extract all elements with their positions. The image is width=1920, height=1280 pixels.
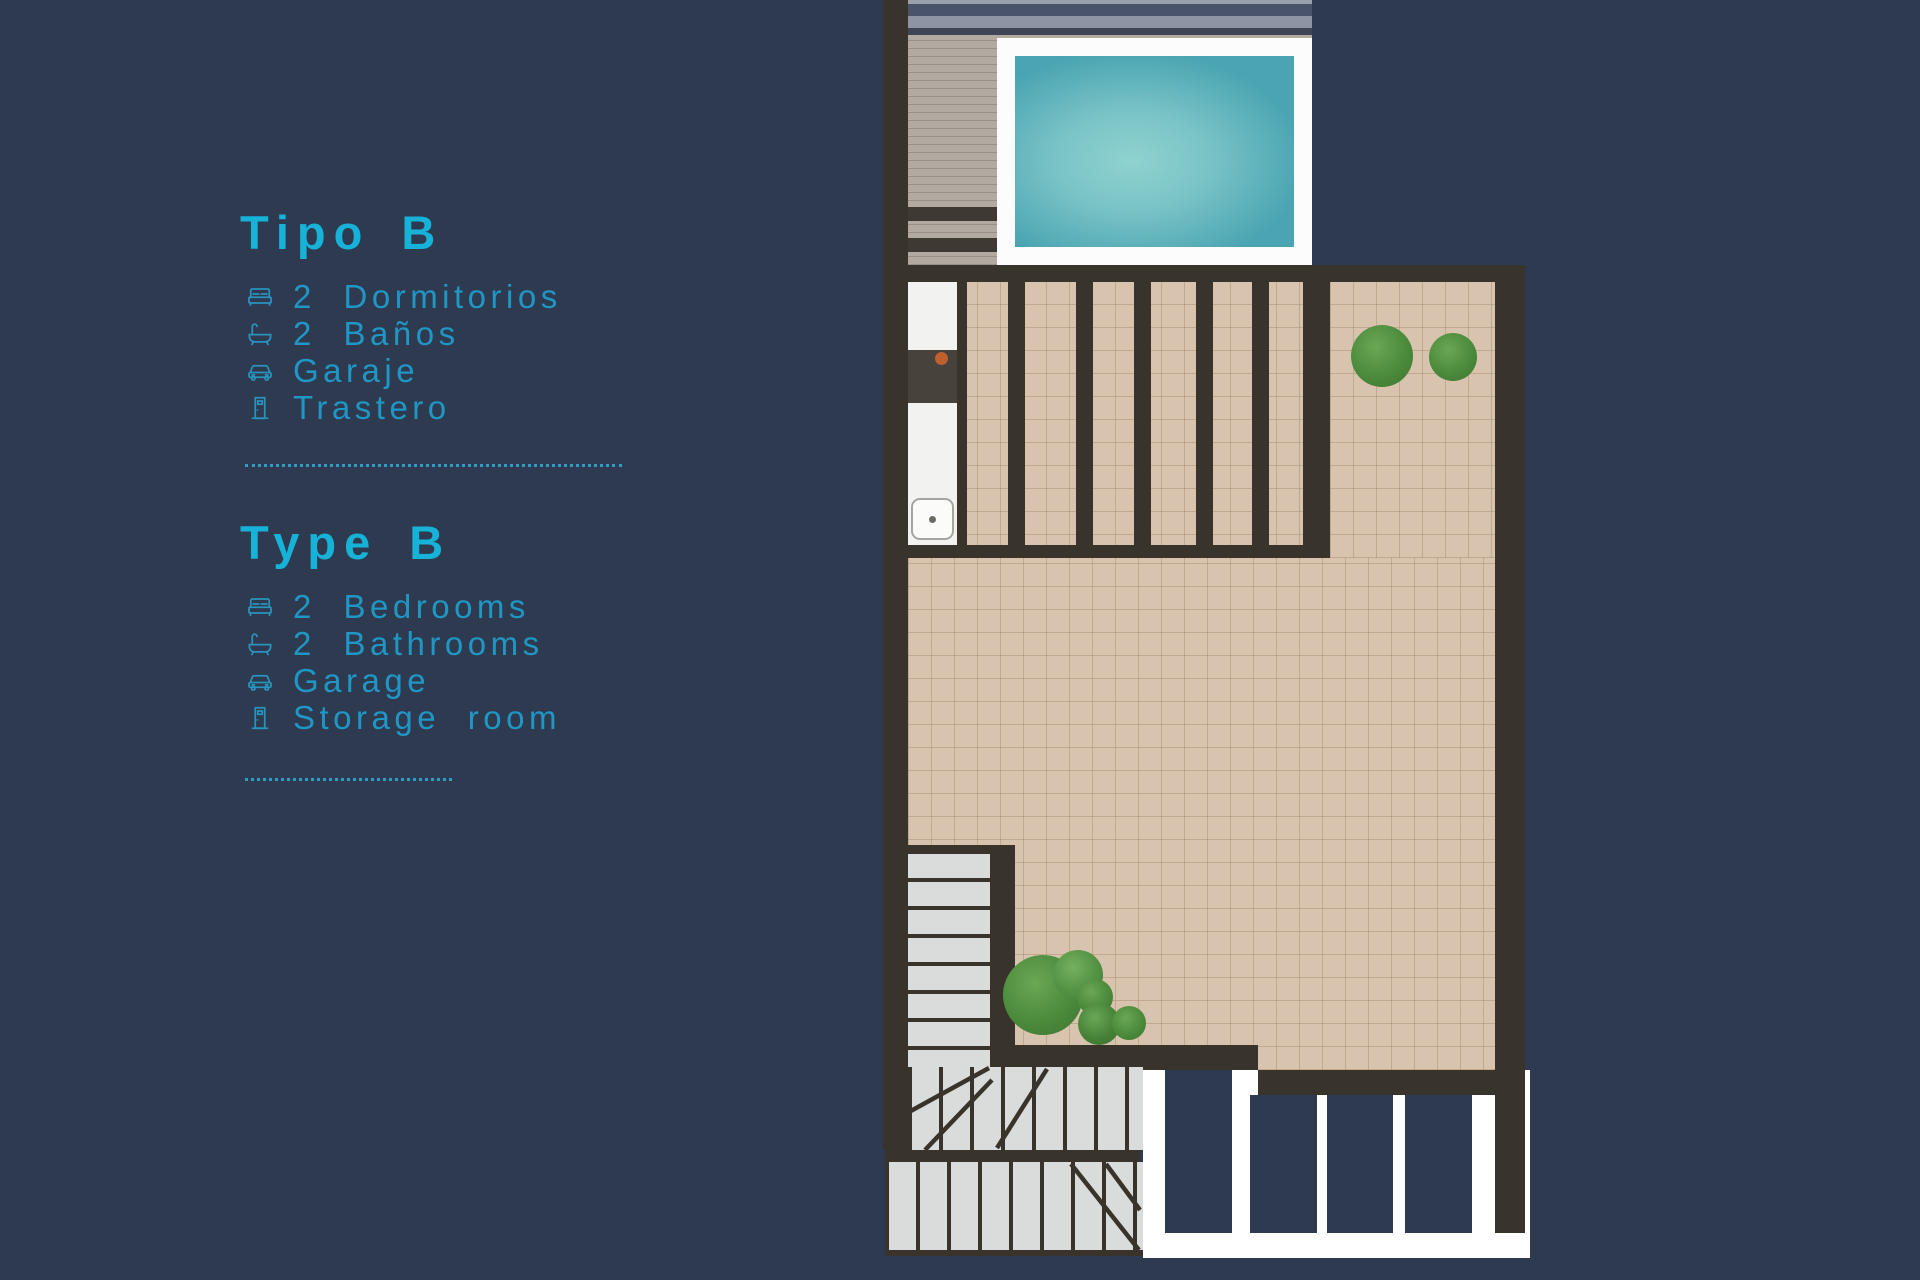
car-icon (243, 664, 277, 698)
section-title-tipo: Tipo B (240, 205, 443, 260)
wall-below-pergola (908, 545, 1330, 558)
info-panel: Tipo B 2 Dormitorios (0, 0, 720, 1280)
feature-item: 2 Bedrooms (243, 588, 561, 625)
door-icon (243, 391, 277, 425)
staircase-upper-run (908, 845, 990, 1067)
dotted-divider (245, 778, 452, 781)
cooktop-burner (935, 352, 948, 365)
pergola-terrace (908, 282, 1303, 558)
planter-bush (1112, 1006, 1146, 1040)
bath-icon (243, 317, 277, 351)
staircase-lower-run (885, 1162, 1143, 1256)
planter-bush (1429, 333, 1477, 381)
planter-bush (1351, 325, 1413, 387)
deck-stripe (908, 28, 1312, 35)
wall-below-pool (883, 265, 1525, 282)
feature-label: 2 Baños (293, 315, 460, 353)
feature-label: 2 Dormitorios (293, 278, 562, 316)
door-icon (243, 701, 277, 735)
page-background: Tipo B 2 Dormitorios (0, 0, 1920, 1280)
wall-pool-right (1303, 265, 1330, 558)
terrace-right-strip (1330, 282, 1495, 558)
deck-stripe (908, 16, 1312, 28)
wall-stair-divider (885, 1150, 1140, 1162)
feature-label: Trastero (293, 389, 451, 427)
wall-garage-top (1258, 1070, 1495, 1095)
dotted-divider (245, 464, 622, 467)
bed-icon (243, 280, 277, 314)
garage-panel (1250, 1095, 1317, 1233)
bath-icon (243, 627, 277, 661)
pergola-slat (1252, 282, 1269, 558)
sink-drain (929, 516, 936, 523)
pergola-slat (1076, 282, 1093, 558)
pergola-slat (1008, 282, 1025, 558)
pergola-slat (1196, 282, 1213, 558)
feature-label: Garaje (293, 352, 419, 390)
pergola-slat (1134, 282, 1151, 558)
feature-item: Garage (243, 662, 561, 699)
feature-label: 2 Bedrooms (293, 588, 530, 626)
bed-icon (243, 590, 277, 624)
feature-item: 2 Bathrooms (243, 625, 561, 662)
feature-item: Storage room (243, 699, 561, 736)
feature-list-tipo: 2 Dormitorios 2 Baños (243, 278, 562, 426)
floor-plan (875, 0, 1535, 1280)
feature-label: Storage room (293, 699, 561, 737)
feature-item: Trastero (243, 389, 562, 426)
kitchen-cooktop (908, 350, 957, 403)
wall-left (883, 0, 908, 1150)
deck-dark-band (908, 207, 997, 221)
garage-panel (1165, 1070, 1232, 1233)
feature-item: Garaje (243, 352, 562, 389)
garage-panel (1405, 1095, 1472, 1233)
feature-item: 2 Dormitorios (243, 278, 562, 315)
staircase-mid-run (908, 1067, 1143, 1150)
feature-label: Garage (293, 662, 430, 700)
pool-water (1015, 56, 1294, 247)
wall-kitchen-mullion (957, 282, 967, 558)
section-title-type: Type B (240, 515, 451, 570)
feature-list-type: 2 Bedrooms 2 Bathrooms (243, 588, 561, 736)
car-icon (243, 354, 277, 388)
feature-item: 2 Baños (243, 315, 562, 352)
wall-right-lower (1495, 265, 1525, 1233)
deck-dark-band (908, 238, 997, 252)
deck-stripe (908, 4, 1312, 16)
feature-label: 2 Bathrooms (293, 625, 544, 663)
garage-panel (1327, 1095, 1393, 1233)
